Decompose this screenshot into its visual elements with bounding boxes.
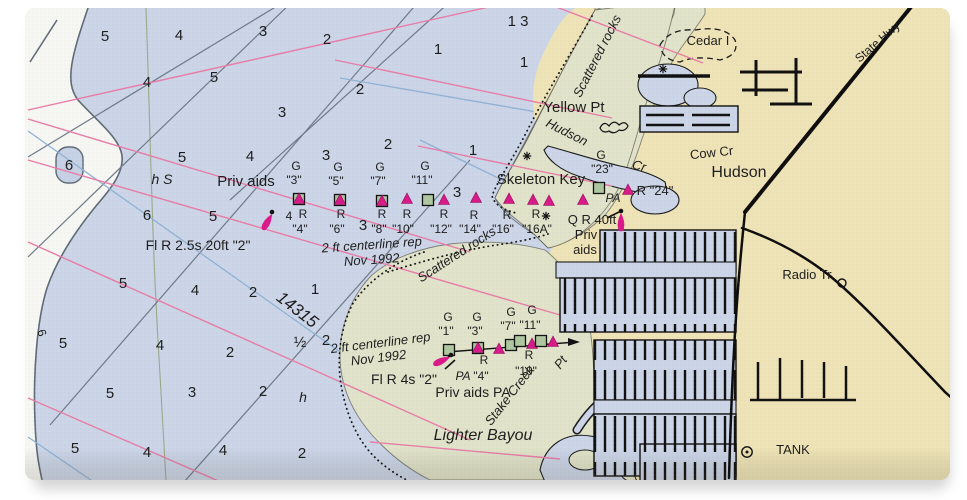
chart-print: 54321124535465321335421542½253254421 36P… <box>25 0 965 500</box>
towel-texture <box>25 8 950 480</box>
nautical-chart-scene: 14315 <box>0 0 967 500</box>
towel-bottom-fold <box>25 448 950 480</box>
hudson-nautical-chart: 14315 <box>0 0 967 500</box>
